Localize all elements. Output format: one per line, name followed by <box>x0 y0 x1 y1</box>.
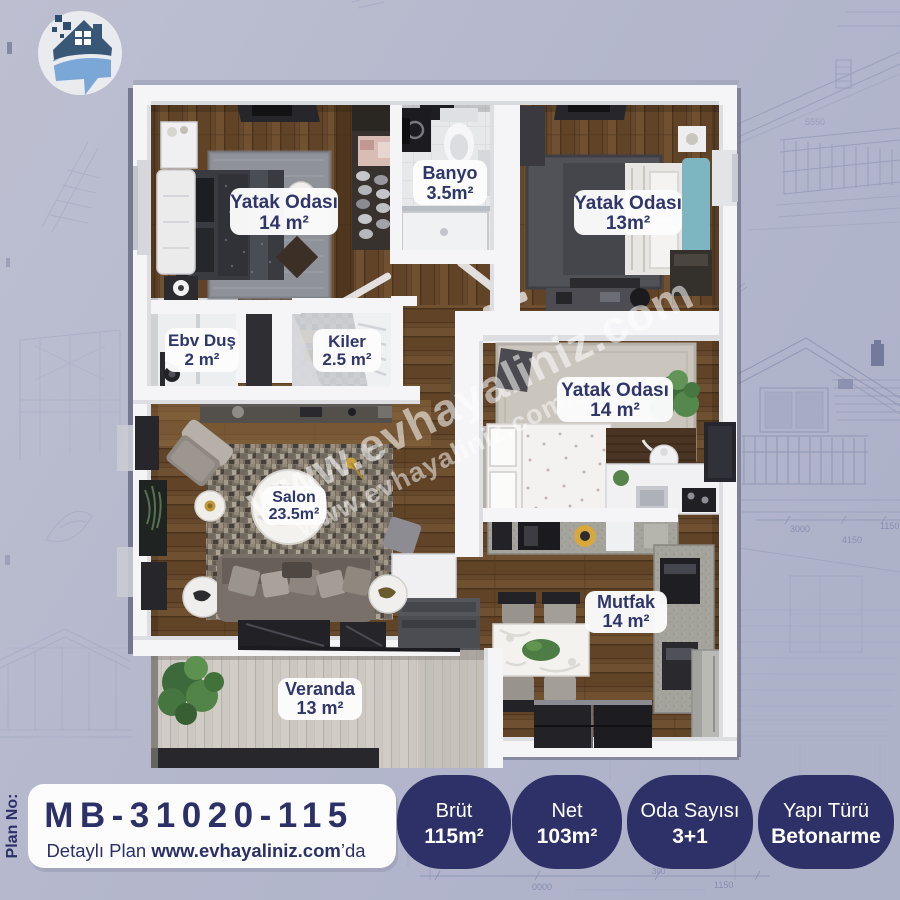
svg-text:Ebv Duş: Ebv Duş <box>168 331 236 350</box>
svg-text:14 m²: 14 m² <box>602 611 649 631</box>
svg-text:Yatak Odası: Yatak Odası <box>574 193 682 214</box>
svg-text:Kiler: Kiler <box>328 332 366 351</box>
svg-text:1150: 1150 <box>880 521 899 531</box>
svg-text:Brüt: Brüt <box>436 800 473 822</box>
svg-text:Yatak Odası: Yatak Odası <box>561 380 669 401</box>
svg-text:3+1: 3+1 <box>672 825 708 848</box>
svg-text:Mutfak: Mutfak <box>597 592 656 612</box>
svg-text:Oda Sayısı: Oda Sayısı <box>641 800 740 822</box>
svg-text:1150: 1150 <box>714 880 733 890</box>
svg-text:103m²: 103m² <box>537 825 598 848</box>
svg-text:13m²: 13m² <box>606 213 650 234</box>
svg-text:23.5m²: 23.5m² <box>269 506 320 523</box>
svg-text:0000: 0000 <box>532 882 552 892</box>
svg-text:Banyo: Banyo <box>422 163 477 183</box>
svg-text:2 m²: 2 m² <box>185 350 220 369</box>
svg-text:115m²: 115m² <box>424 825 484 848</box>
svg-text:5550: 5550 <box>805 117 825 127</box>
svg-text:Betonarme: Betonarme <box>771 825 881 848</box>
svg-text:Plan No:: Plan No: <box>4 794 21 859</box>
svg-text:Yapı Türü: Yapı Türü <box>783 800 869 822</box>
svg-text:14 m²: 14 m² <box>259 213 309 234</box>
svg-text:Yatak Odası: Yatak Odası <box>230 192 338 213</box>
svg-text:Net: Net <box>551 800 583 822</box>
svg-text:4150: 4150 <box>842 535 862 545</box>
svg-text:MB-31020-115: MB-31020-115 <box>44 796 354 835</box>
svg-text:300: 300 <box>652 867 666 876</box>
svg-text:14 m²: 14 m² <box>590 400 640 421</box>
svg-text:Detaylı Plan www.evhayaliniz.c: Detaylı Plan www.evhayaliniz.com’da <box>46 840 366 861</box>
svg-text:Salon: Salon <box>272 489 316 506</box>
svg-text:2.5 m²: 2.5 m² <box>322 350 371 369</box>
svg-text:3000: 3000 <box>790 524 810 534</box>
svg-text:13 m²: 13 m² <box>296 698 343 718</box>
svg-text:Veranda: Veranda <box>285 679 356 699</box>
svg-text:3.5m²: 3.5m² <box>426 183 473 203</box>
